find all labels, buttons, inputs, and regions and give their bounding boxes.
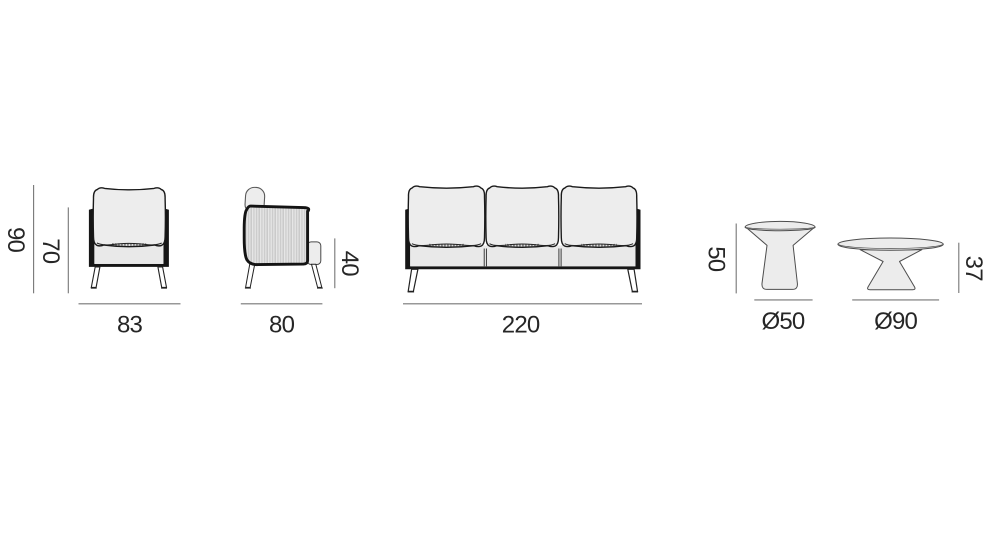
svg-text:70: 70 bbox=[37, 238, 64, 264]
svg-text:50: 50 bbox=[703, 246, 730, 272]
svg-text:220: 220 bbox=[502, 312, 540, 339]
svg-text:Ø90: Ø90 bbox=[874, 308, 917, 335]
svg-text:37: 37 bbox=[960, 256, 987, 282]
svg-text:90: 90 bbox=[2, 227, 29, 253]
svg-text:80: 80 bbox=[269, 312, 295, 339]
svg-text:40: 40 bbox=[336, 251, 363, 277]
svg-text:83: 83 bbox=[117, 312, 143, 339]
svg-text:Ø50: Ø50 bbox=[762, 308, 805, 335]
